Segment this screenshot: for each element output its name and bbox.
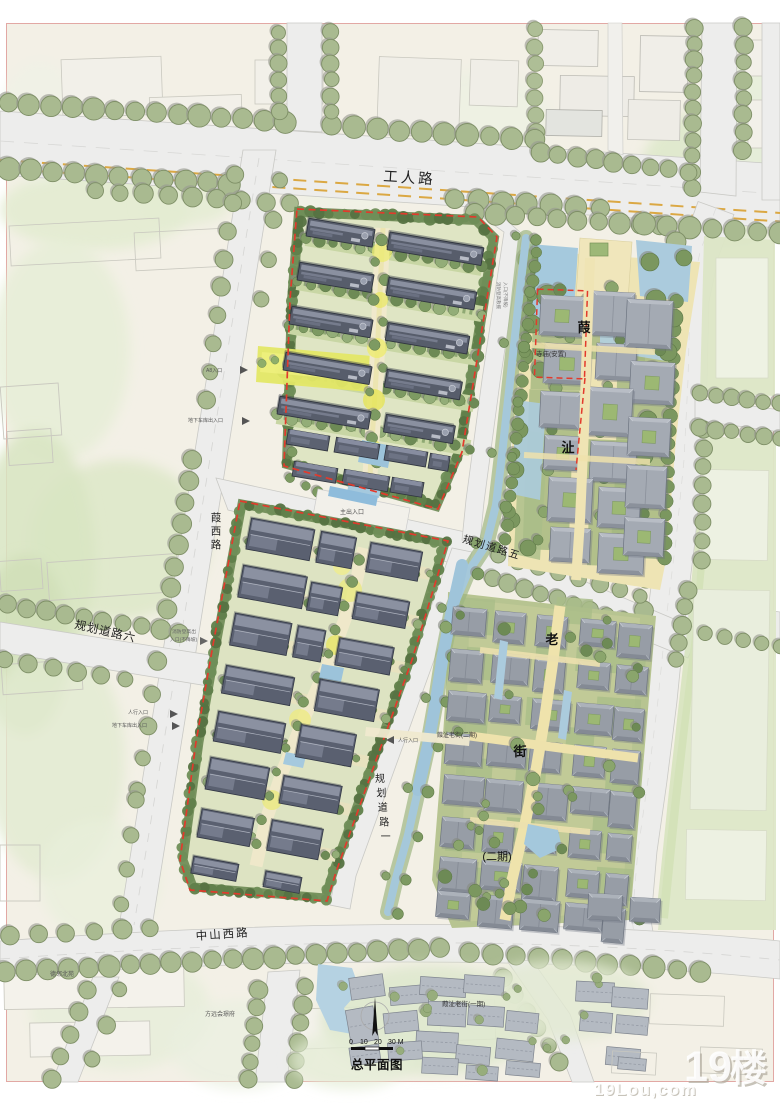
svg-text:人行入口: 人行入口: [128, 709, 148, 716]
svg-text:人行入口: 人行入口: [398, 737, 418, 744]
svg-text:划: 划: [376, 787, 386, 800]
svg-text:工人路: 工人路: [383, 168, 436, 188]
svg-text:入口(不降坡): 入口(不降坡): [502, 282, 509, 308]
svg-text:路: 路: [211, 538, 222, 551]
svg-text:葭: 葭: [211, 512, 222, 524]
svg-text:地下车库出入口: 地下车库出入口: [188, 417, 223, 424]
svg-text:葭沚老街(二期): 葭沚老街(二期): [437, 731, 477, 739]
svg-text:德邻北苑: 德邻北苑: [50, 970, 74, 978]
svg-text:19Lou,com: 19Lou,com: [594, 1080, 697, 1099]
svg-text:A8入口: A8入口: [206, 368, 222, 374]
svg-text:0: 0: [349, 1039, 353, 1046]
svg-text:方远会璟府: 方远会璟府: [205, 1010, 235, 1018]
svg-text:(二期): (二期): [482, 850, 511, 863]
svg-text:规: 规: [375, 772, 385, 785]
svg-text:寺庙(安置): 寺庙(安置): [536, 349, 566, 358]
svg-text:街: 街: [512, 744, 526, 759]
svg-text:西: 西: [211, 526, 222, 538]
svg-text:路: 路: [379, 816, 389, 829]
svg-text:沚: 沚: [561, 440, 574, 455]
svg-text:30 M: 30 M: [388, 1039, 404, 1046]
svg-text:主出入口: 主出入口: [340, 508, 364, 516]
svg-text:总平面图: 总平面图: [351, 1057, 403, 1072]
svg-text:地下车库出入口: 地下车库出入口: [112, 722, 147, 729]
svg-text:葭沚老街(一期): 葭沚老街(一期): [442, 999, 485, 1008]
svg-text:葭: 葭: [577, 320, 591, 335]
svg-text:一: 一: [381, 832, 391, 843]
svg-text:老: 老: [544, 632, 558, 647]
svg-text:10: 10: [360, 1039, 368, 1046]
svg-text:入口(不降坡): 入口(不降坡): [170, 636, 198, 643]
svg-text:消防登高救援: 消防登高救援: [495, 282, 502, 309]
svg-text:20: 20: [374, 1039, 382, 1046]
svg-text:道: 道: [378, 801, 388, 814]
svg-text:消防登高出: 消防登高出: [172, 628, 196, 635]
